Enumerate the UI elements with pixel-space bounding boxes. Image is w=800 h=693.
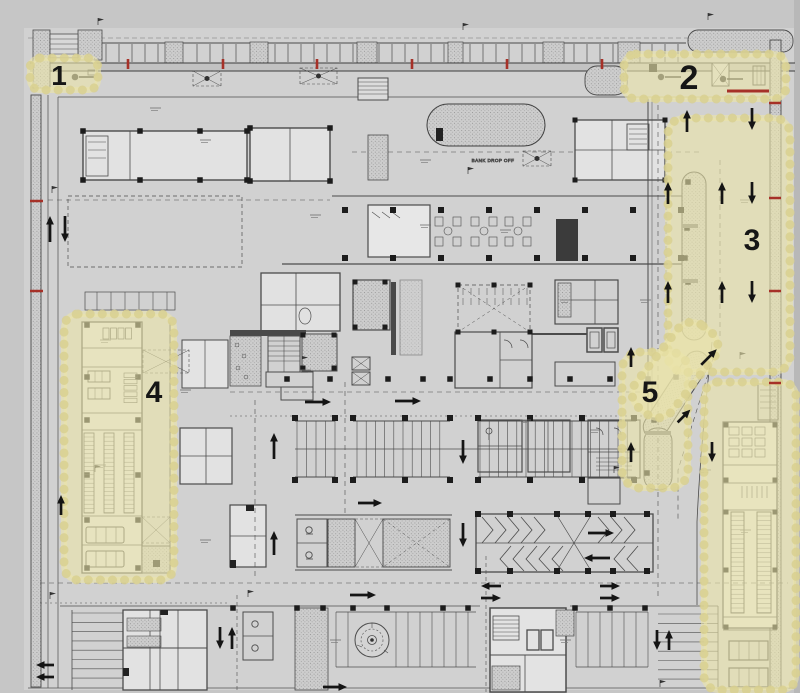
highlight-right-strip-region[interactable]	[704, 382, 796, 690]
highlight-zone-4[interactable]	[64, 314, 174, 580]
highlight-zone-5-number: 5	[642, 376, 659, 409]
elevator-block	[556, 219, 578, 261]
planter	[543, 42, 564, 64]
shaft-core	[353, 280, 390, 330]
planter	[250, 42, 268, 64]
planter	[357, 42, 377, 64]
planter	[230, 336, 261, 386]
core-rooms	[261, 273, 340, 331]
planter	[448, 42, 463, 64]
highlight-zone-1-number: 1	[51, 60, 67, 91]
highlight-zone-3-number: 3	[744, 224, 761, 257]
shaft-core	[400, 280, 422, 355]
reception-room	[368, 205, 430, 257]
dropoff-island	[427, 104, 545, 146]
floor-plan-canvas: BANK DROP OFF 12345	[0, 0, 800, 693]
wall-pier	[368, 135, 388, 180]
stair	[358, 78, 388, 100]
left-boundary-wall	[31, 95, 41, 687]
thick-wall	[391, 282, 396, 355]
ramp-pad	[328, 519, 355, 567]
thick-wall	[230, 330, 306, 336]
highlight-right-strip[interactable]	[704, 382, 796, 690]
plan-text-label: BANK DROP OFF	[472, 158, 515, 163]
highlight-zone-2-number: 2	[680, 59, 699, 97]
planter-strip	[295, 608, 328, 690]
retail-room	[83, 131, 247, 180]
shaft-core	[302, 334, 337, 371]
highlight-zone-4-region[interactable]	[64, 314, 174, 580]
planter	[165, 42, 183, 64]
highlight-zone-4-number: 4	[146, 376, 163, 409]
